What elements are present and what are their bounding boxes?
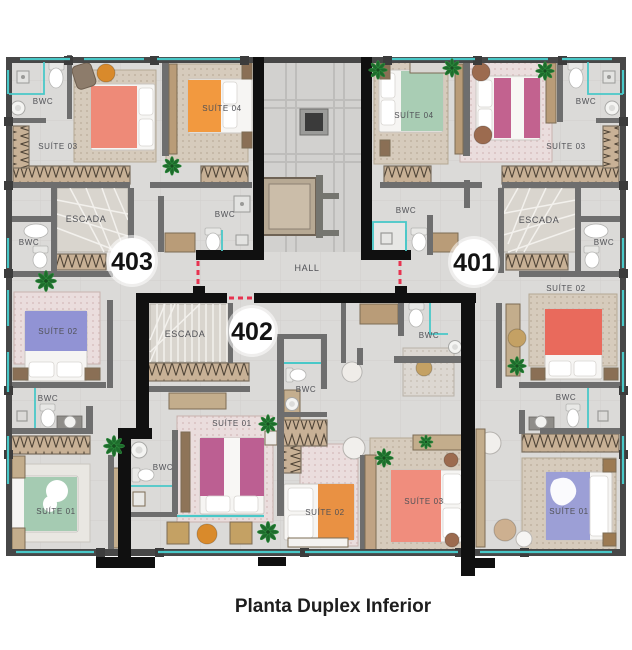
svg-text:ESCADA: ESCADA xyxy=(165,329,206,339)
svg-text:BWC: BWC xyxy=(419,331,439,340)
svg-text:SUÍTE 04: SUÍTE 04 xyxy=(394,111,433,120)
svg-text:SUÍTE 01: SUÍTE 01 xyxy=(36,507,75,516)
svg-text:SUÍTE 02: SUÍTE 02 xyxy=(38,327,77,336)
svg-text:BWC: BWC xyxy=(296,385,316,394)
svg-text:BWC: BWC xyxy=(19,238,39,247)
svg-text:SUÍTE 03: SUÍTE 03 xyxy=(404,497,443,506)
svg-text:BWC: BWC xyxy=(153,463,173,472)
svg-text:BWC: BWC xyxy=(215,210,235,219)
svg-text:BWC: BWC xyxy=(396,206,416,215)
svg-text:SUÍTE 01: SUÍTE 01 xyxy=(549,507,588,516)
svg-text:SUÍTE 02: SUÍTE 02 xyxy=(546,284,585,293)
svg-text:SUÍTE 01: SUÍTE 01 xyxy=(212,419,251,428)
svg-text:Planta Duplex Inferior: Planta Duplex Inferior xyxy=(235,596,432,617)
svg-text:BWC: BWC xyxy=(594,238,614,247)
svg-text:SUÍTE 02: SUÍTE 02 xyxy=(305,508,344,517)
svg-text:BWC: BWC xyxy=(556,393,576,402)
svg-text:HALL: HALL xyxy=(295,263,320,273)
svg-text:SUÍTE 03: SUÍTE 03 xyxy=(546,142,585,151)
svg-text:SUÍTE 03: SUÍTE 03 xyxy=(38,142,77,151)
svg-text:BWC: BWC xyxy=(576,97,596,106)
svg-text:403: 403 xyxy=(111,248,153,276)
svg-text:ESCADA: ESCADA xyxy=(519,215,560,225)
svg-text:402: 402 xyxy=(231,318,273,346)
svg-text:BWC: BWC xyxy=(33,97,53,106)
svg-text:BWC: BWC xyxy=(38,394,58,403)
svg-text:401: 401 xyxy=(453,249,495,277)
svg-text:ESCADA: ESCADA xyxy=(66,214,107,224)
svg-text:SUÍTE 04: SUÍTE 04 xyxy=(202,104,241,113)
